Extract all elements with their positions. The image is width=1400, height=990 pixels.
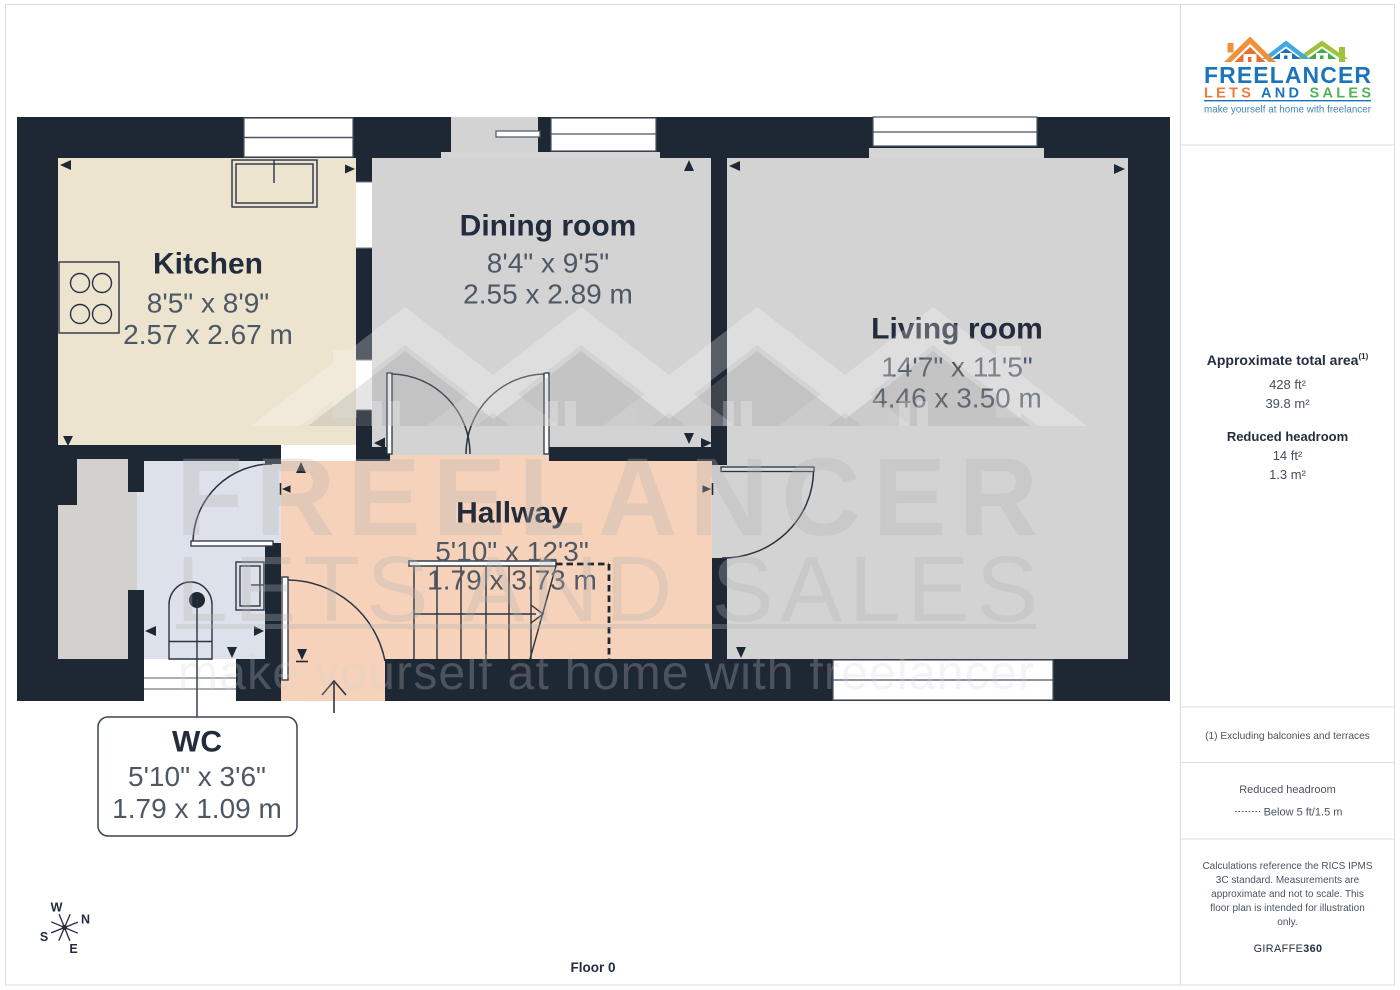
svg-text:E: E [69,942,77,956]
svg-text:Below 5 ft/1.5 m: Below 5 ft/1.5 m [1264,807,1343,819]
svg-text:Dining room: Dining room [460,210,637,243]
svg-text:Kitchen: Kitchen [153,248,263,281]
svg-text:WC: WC [172,726,222,759]
svg-text:2.57 x 2.67 m: 2.57 x 2.67 m [123,319,293,350]
svg-text:Approximate total area(1): Approximate total area(1) [1207,352,1369,368]
svg-text:W: W [51,901,63,915]
svg-text:N: N [81,913,90,927]
svg-text:2.55 x 2.89 m: 2.55 x 2.89 m [463,279,633,310]
svg-text:Reduced headroom: Reduced headroom [1239,784,1336,796]
svg-text:Reduced headroom: Reduced headroom [1227,429,1348,444]
svg-text:(1) Excluding balconies and te: (1) Excluding balconies and terraces [1205,731,1370,742]
svg-text:S: S [40,930,48,944]
svg-text:14 ft²: 14 ft² [1273,448,1303,463]
svg-text:make yourself at home with fre: make yourself at home with freelancer [178,647,1034,700]
svg-text:1.3 m²: 1.3 m² [1269,467,1307,482]
svg-text:only.: only. [1277,917,1297,928]
svg-text:approximate and not to scale.: approximate and not to scale. This [1211,889,1364,900]
svg-text:Floor 0: Floor 0 [570,960,615,975]
svg-text:GIRAFFE360: GIRAFFE360 [1254,943,1323,955]
svg-text:1.79 x 1.09 m: 1.79 x 1.09 m [112,793,282,824]
svg-text:428 ft²: 428 ft² [1269,377,1307,392]
svg-text:8'5" x 8'9": 8'5" x 8'9" [147,288,269,319]
svg-text:FREELANCER: FREELANCER [1204,62,1371,88]
svg-text:8'4" x 9'5": 8'4" x 9'5" [487,248,609,279]
svg-text:make yourself at home with fre: make yourself at home with freelancer [1204,105,1372,116]
svg-text:Calculations reference the RIC: Calculations reference the RICS IPMS [1202,861,1372,872]
svg-text:3C standard. Measurements are: 3C standard. Measurements are [1216,875,1360,886]
svg-text:5'10" x 3'6": 5'10" x 3'6" [128,761,266,792]
svg-text:39.8 m²: 39.8 m² [1265,396,1310,411]
svg-text:floor plan is intended for ill: floor plan is intended for illustration [1210,903,1365,914]
